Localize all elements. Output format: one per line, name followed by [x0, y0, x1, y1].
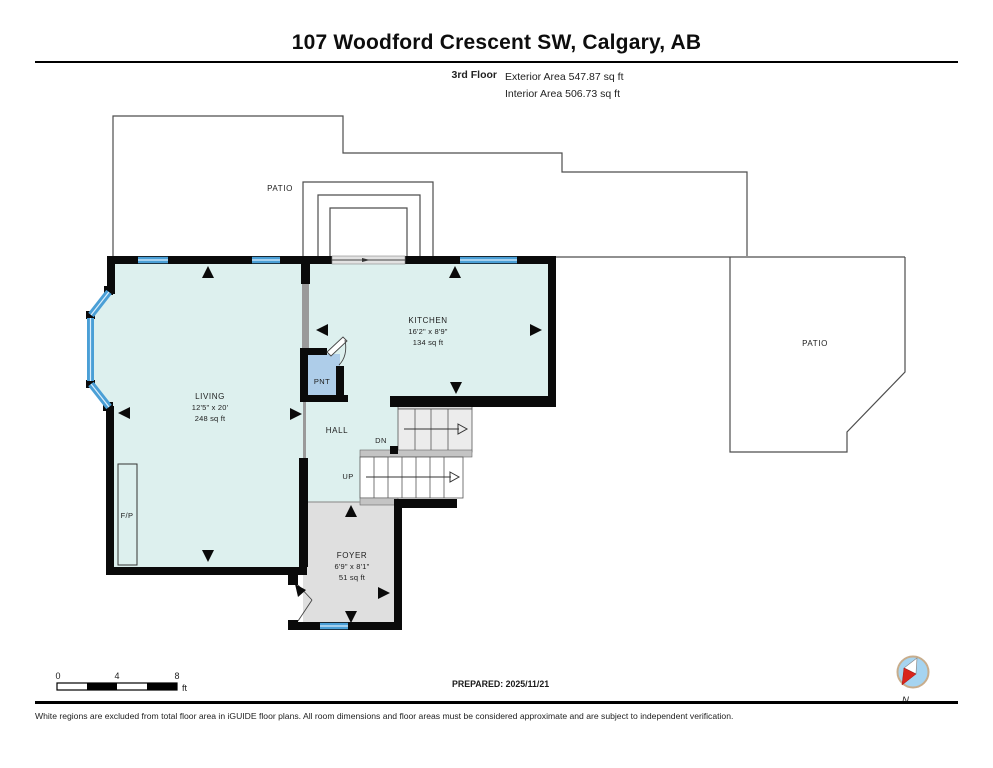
- scale-tick-8: 8: [174, 671, 179, 681]
- foyer-dims: 6'9" x 8'1": [335, 562, 370, 571]
- wall-kitchen-right: [548, 256, 556, 407]
- patio-left-label: PATIO: [267, 184, 293, 193]
- living-label: LIVING: [195, 392, 225, 401]
- wall-stair-block-bottom: [390, 446, 398, 454]
- kitchen-label: KITCHEN: [408, 316, 447, 325]
- deck-step-middle: [318, 195, 420, 256]
- kitchen-area: 134 sq ft: [413, 338, 444, 347]
- wall-foyer-topright: [394, 499, 457, 508]
- wall-living-hall: [299, 458, 308, 567]
- wall-stair-block-top: [390, 396, 398, 403]
- wall-pantry-left: [300, 348, 308, 402]
- foyer-area: 51 sq ft: [339, 573, 366, 582]
- patio-left-outline: [113, 116, 747, 256]
- footer-divider: [35, 701, 958, 704]
- foyer-label: FOYER: [337, 551, 368, 560]
- stair-mid-landing: [360, 450, 472, 457]
- floor-plan-page: 107 Woodford Crescent SW, Calgary, AB 3r…: [0, 0, 993, 768]
- pantry-fill: [306, 354, 340, 398]
- stair-up-label: UP: [342, 472, 353, 481]
- pantry-label: PNT: [314, 377, 330, 386]
- scale-bar: 0 4 8 ft: [55, 671, 187, 693]
- wall-left-lower: [106, 406, 114, 575]
- floor-plan-drawing: PATIO PATIO KITCHEN 16'2" x 8'9" 134 sq …: [0, 0, 993, 768]
- stair-bottom-landing: [360, 498, 398, 505]
- living-dims: 12'5" x 20': [192, 403, 229, 412]
- fireplace-label: F/P: [121, 511, 134, 520]
- patio-right-outline: [730, 257, 905, 452]
- hall-label: HALL: [326, 426, 348, 435]
- wall-foyer-right: [394, 502, 402, 630]
- disclaimer-text: White regions are excluded from total fl…: [35, 711, 955, 721]
- opening-living-hall: [303, 402, 306, 458]
- wall-kitchen-bottom: [390, 396, 556, 407]
- scale-unit: ft: [182, 683, 188, 693]
- wall-pantry-bottom: [300, 395, 348, 402]
- wall-interior-upper: [301, 256, 310, 284]
- prepared-date: PREPARED: 2025/11/21: [452, 679, 549, 689]
- compass: N: [898, 657, 929, 707]
- living-area: 248 sq ft: [195, 414, 226, 423]
- scale-bar-seg2: [147, 683, 177, 690]
- opening-living-kitchen: [302, 284, 309, 348]
- patio-right-label: PATIO: [802, 339, 828, 348]
- scale-tick-0: 0: [55, 671, 60, 681]
- kitchen-dims: 16'2" x 8'9": [408, 327, 447, 336]
- wall-living-bottom: [106, 567, 307, 575]
- scale-bar-seg1: [87, 683, 117, 690]
- scale-tick-4: 4: [114, 671, 119, 681]
- stair-dn-label: DN: [375, 436, 387, 445]
- deck-step-outer: [303, 182, 433, 256]
- deck-step-inner: [330, 208, 407, 256]
- wall-foyer-left-upper: [288, 567, 298, 585]
- stair-down-box: [398, 409, 472, 452]
